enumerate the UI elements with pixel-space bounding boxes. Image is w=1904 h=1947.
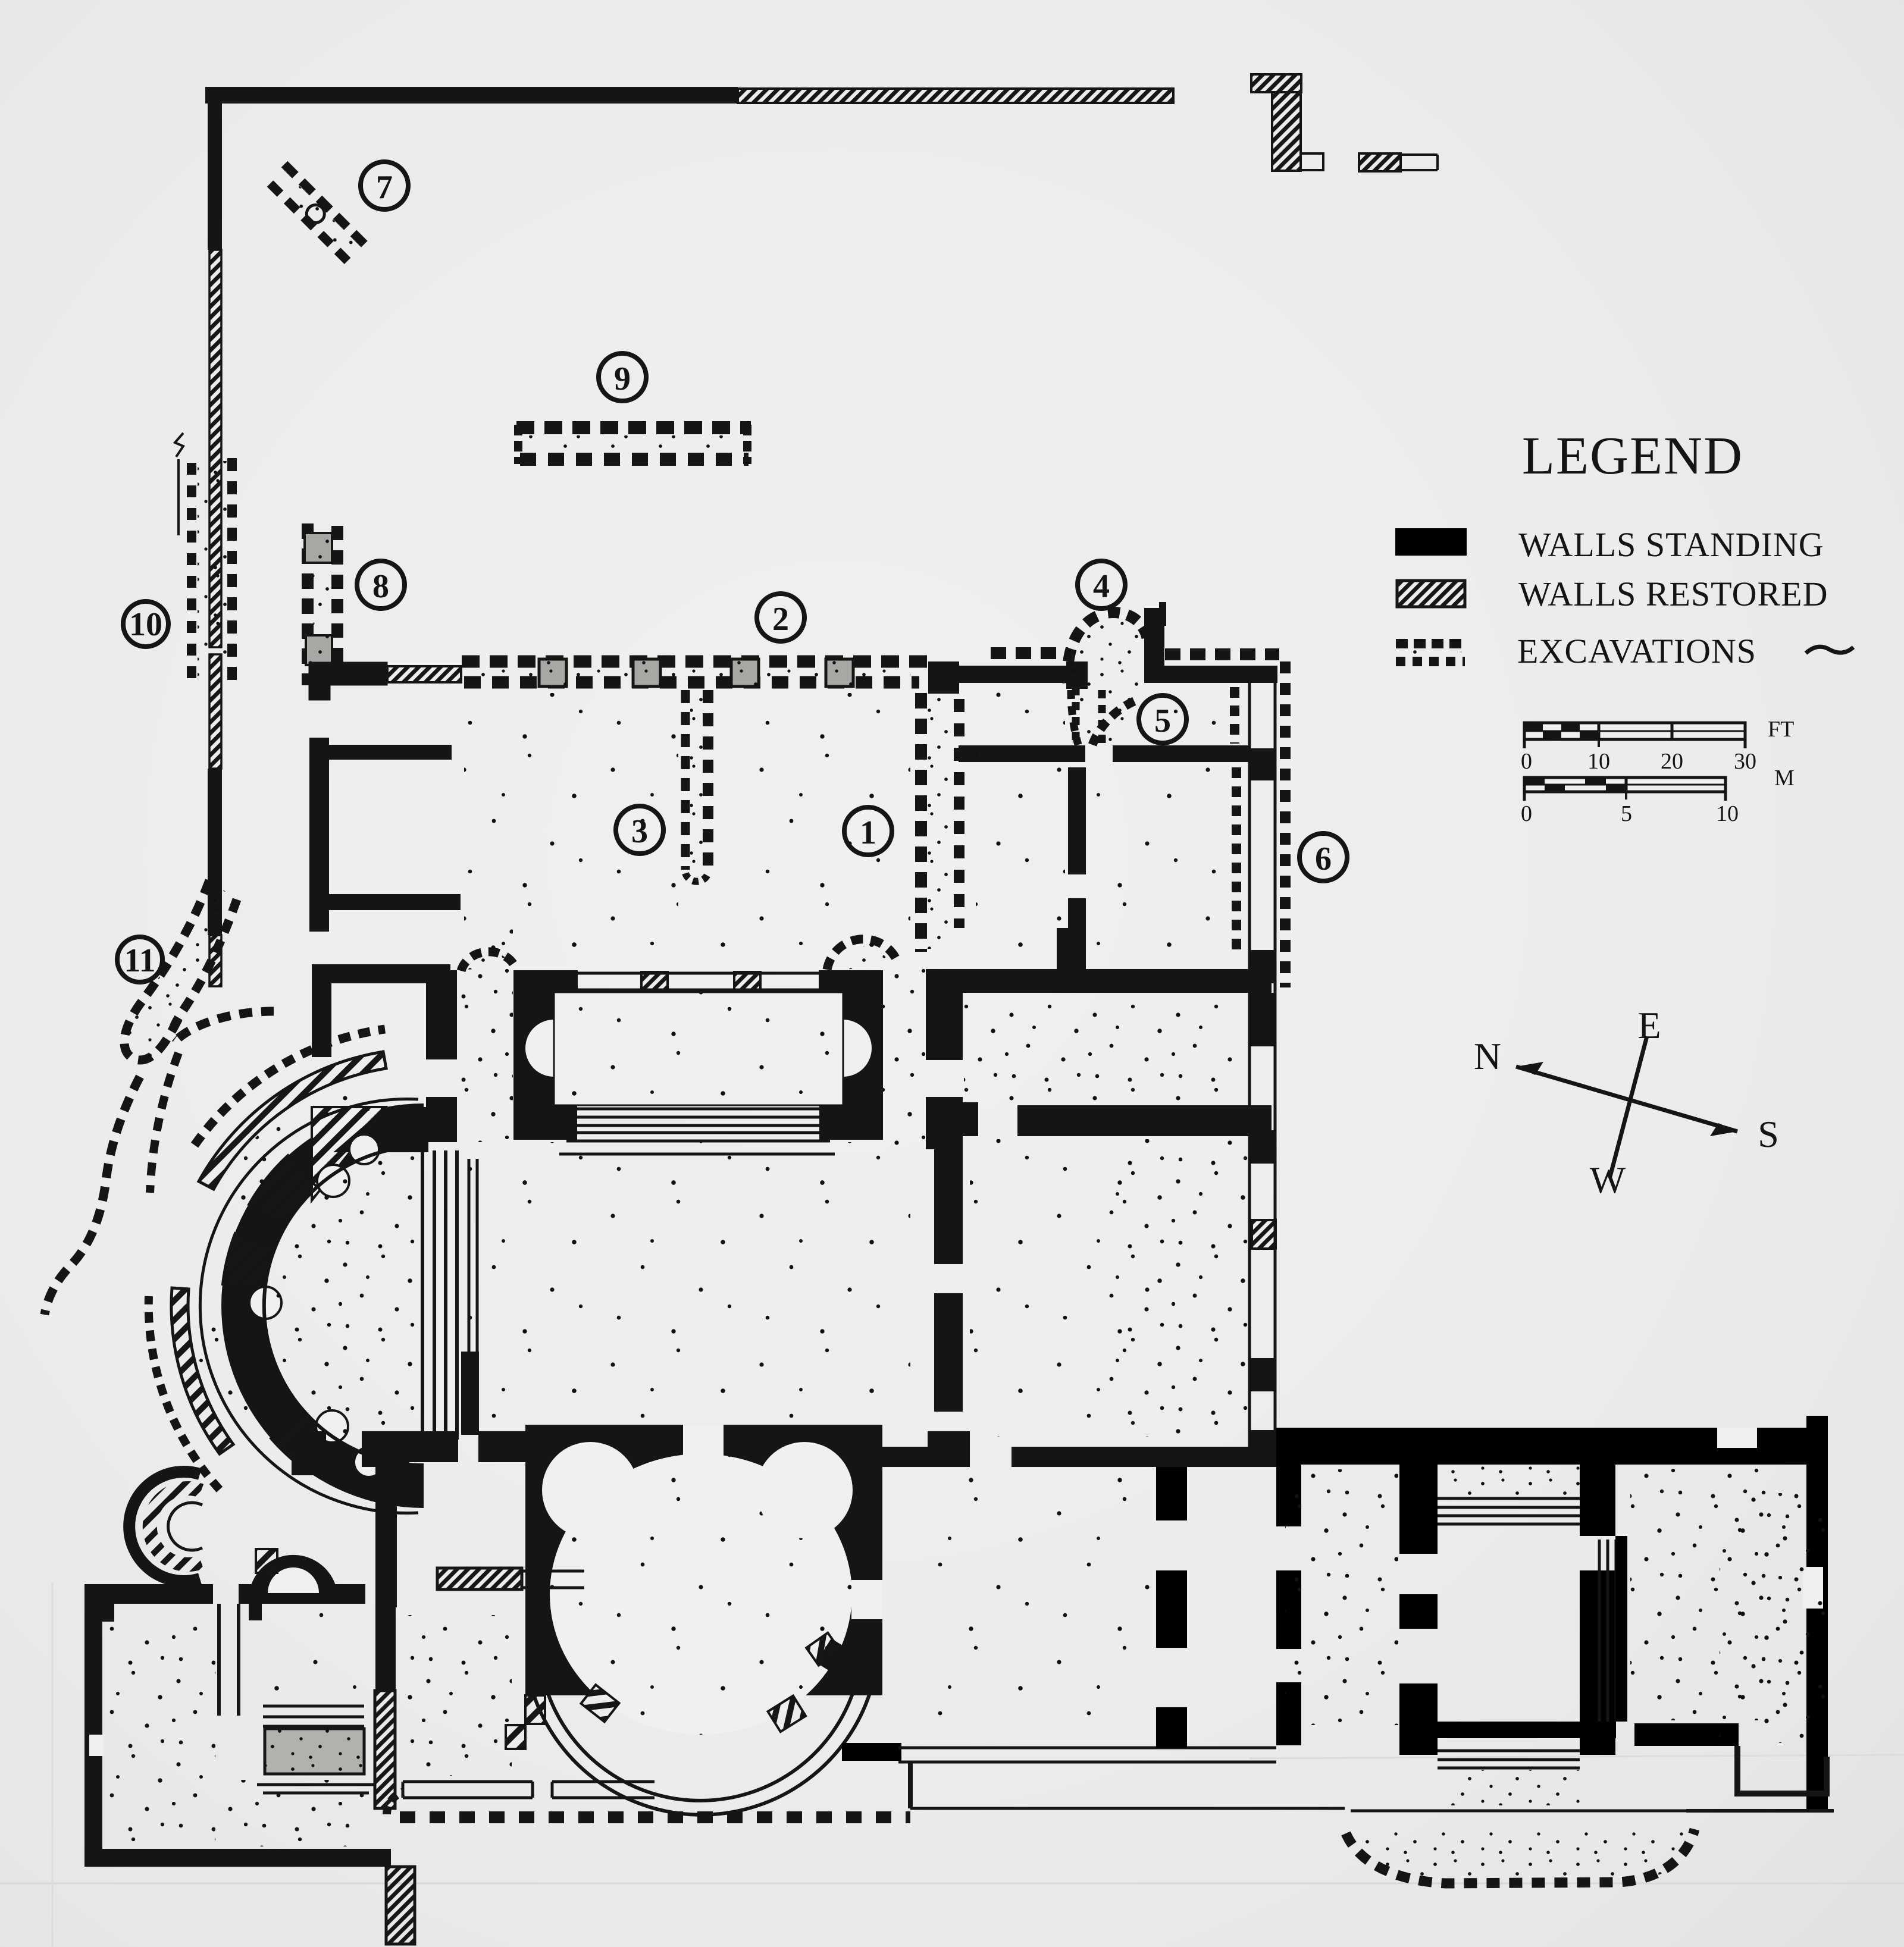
svg-text:7: 7 — [376, 169, 393, 206]
svg-text:WALLS RESTORED: WALLS RESTORED — [1518, 575, 1828, 613]
svg-text:6: 6 — [1315, 841, 1332, 877]
svg-text:11: 11 — [124, 942, 156, 979]
svg-text:5: 5 — [1621, 801, 1632, 826]
svg-text:9: 9 — [614, 360, 631, 397]
svg-text:10: 10 — [1587, 749, 1610, 774]
svg-text:0: 0 — [1521, 801, 1532, 826]
svg-text:1: 1 — [860, 814, 876, 851]
svg-text:4: 4 — [1093, 568, 1110, 605]
svg-text:M: M — [1774, 766, 1795, 791]
svg-text:LEGEND: LEGEND — [1522, 427, 1743, 485]
svg-text:FT: FT — [1768, 717, 1794, 742]
svg-text:8: 8 — [372, 568, 389, 605]
svg-text:10: 10 — [129, 606, 162, 643]
svg-text:10: 10 — [1716, 801, 1739, 826]
svg-text:3: 3 — [631, 813, 648, 850]
svg-text:0: 0 — [1521, 749, 1532, 774]
svg-text:N: N — [1474, 1035, 1501, 1077]
svg-text:S: S — [1758, 1113, 1779, 1155]
svg-text:20: 20 — [1661, 749, 1683, 774]
svg-text:EXCAVATIONS: EXCAVATIONS — [1517, 632, 1756, 670]
svg-text:30: 30 — [1734, 749, 1756, 774]
svg-text:W: W — [1590, 1159, 1626, 1201]
svg-text:5: 5 — [1154, 703, 1171, 739]
svg-text:WALLS STANDING: WALLS STANDING — [1518, 525, 1824, 564]
svg-text:2: 2 — [772, 601, 789, 638]
svg-text:E: E — [1637, 1004, 1661, 1046]
